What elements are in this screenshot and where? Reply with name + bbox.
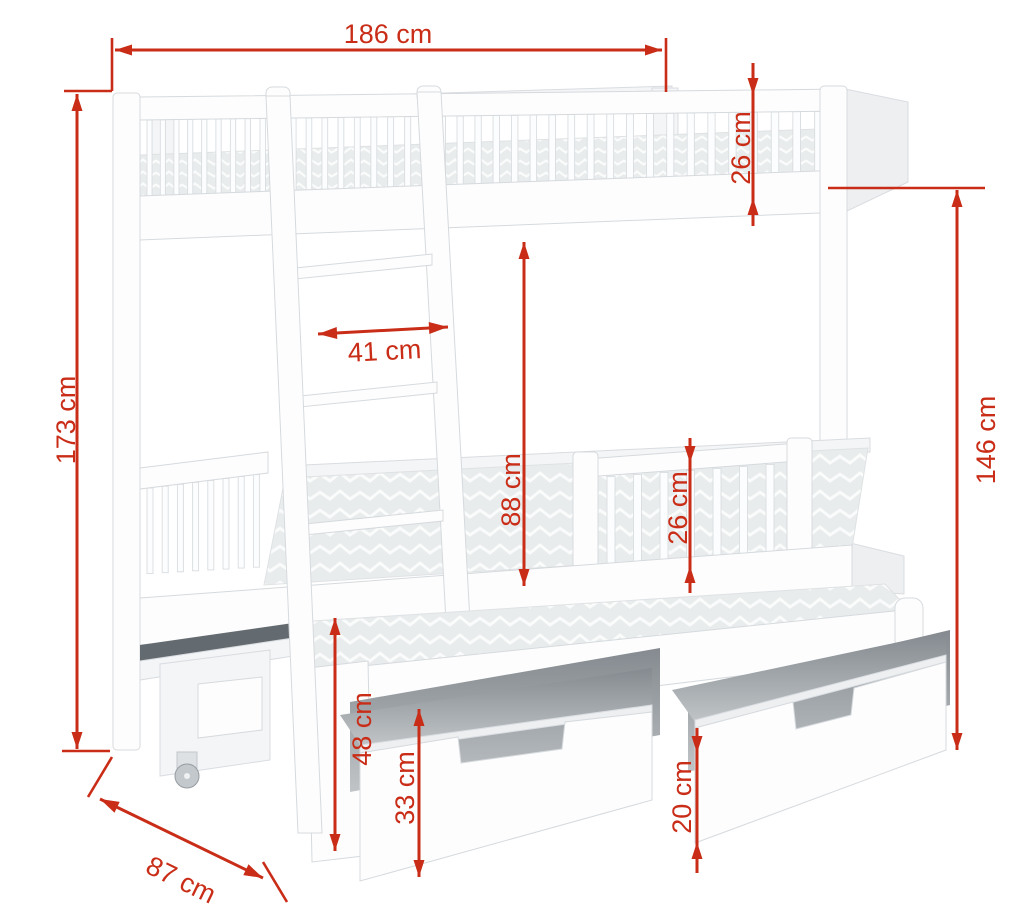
dim-label-upper-guardrail: 26 cm [726,111,756,185]
dim-label-right-side-height: 146 cm [971,396,1001,485]
bunk-bed-diagram: 186 cm 26 cm 173 cm 41 cm 88 cm 26 cm [0,0,1024,923]
dimension-total-length: 186 cm [112,19,666,92]
trundle-panel-cutout [198,677,262,738]
dim-label-total-height: 173 cm [51,376,81,465]
dim-label-drawer-opening: 20 cm [667,760,697,834]
ladder-rung-2 [300,382,437,407]
dimension-drawer-opening: 20 cm [667,728,703,873]
dim-label-ladder-width: 41 cm [347,334,422,368]
dim-label-drawer-height: 33 cm [390,751,420,825]
dim-label-lower-guardrail: 26 cm [663,471,693,545]
ladder-rung-1 [295,254,432,279]
dim-label-total-length: 186 cm [344,19,433,49]
front-left-post [113,93,140,750]
lower-railing-slats [147,475,259,574]
caster-hub [184,773,190,779]
lower-railing-rail [140,452,268,489]
upper-bunk-side-panel [845,89,908,212]
dimension-total-height: 173 cm [51,91,112,751]
dimension-ladder-width: 41 cm [318,322,448,368]
dim-label-bunk-clearance: 88 cm [496,453,526,527]
dim-label-trundle-height: 48 cm [347,692,377,766]
diagram-page: 186 cm 26 cm 173 cm 41 cm 88 cm 26 cm [0,0,1024,923]
dim-label-depth: 87 cm [141,850,220,909]
